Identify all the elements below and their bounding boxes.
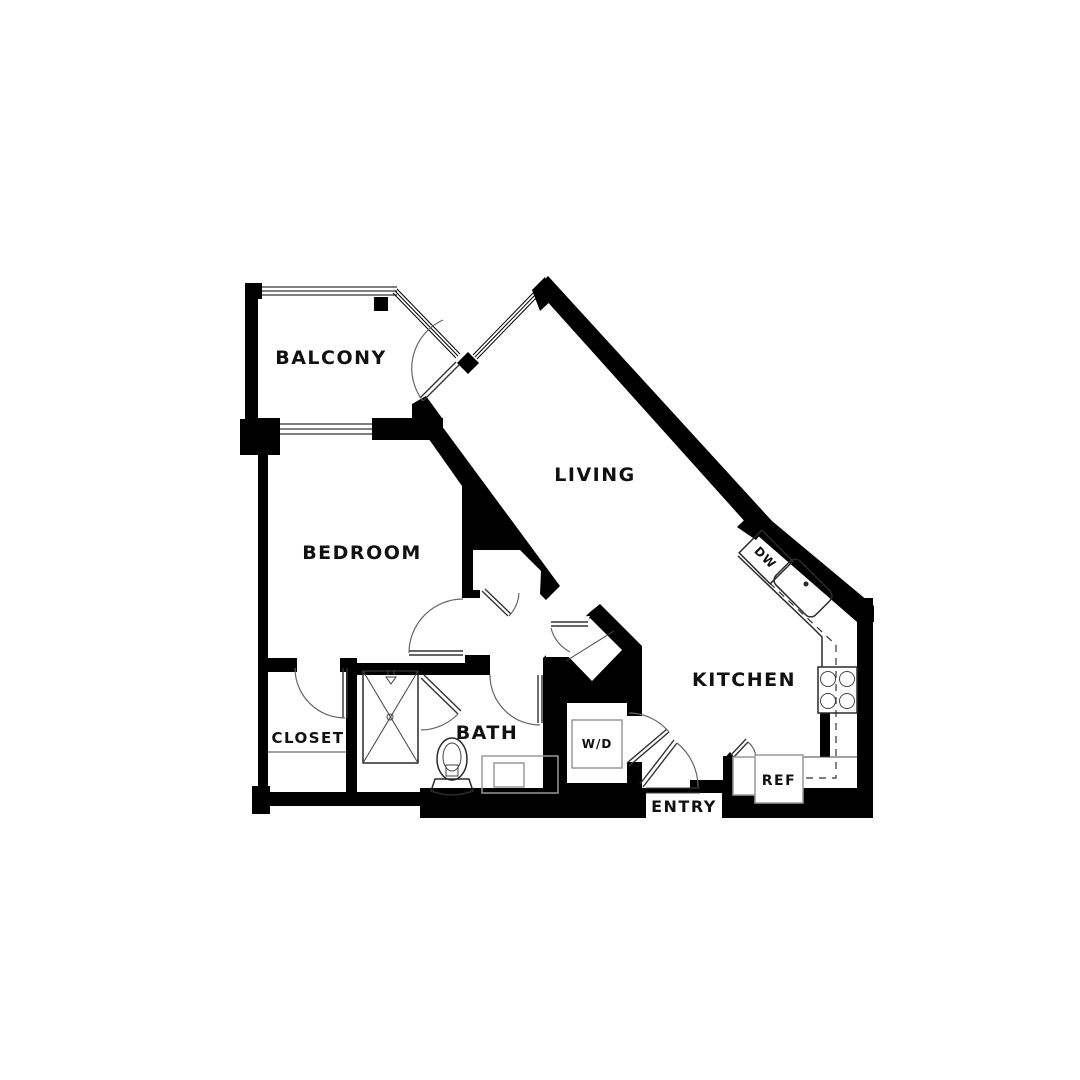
label-balcony: BALCONY bbox=[275, 347, 387, 369]
balcony-corner-post bbox=[457, 352, 479, 374]
niche-door bbox=[482, 589, 519, 616]
label-kitchen: KITCHEN bbox=[692, 669, 796, 691]
balcony-rail-diagonal bbox=[393, 289, 460, 358]
closet-door bbox=[295, 668, 347, 718]
shower bbox=[363, 670, 418, 763]
wall-diagonal-exterior bbox=[536, 276, 874, 622]
floor-plan-canvas: BALCONY LIVING BEDROOM KITCHEN BATH CLOS… bbox=[0, 0, 1080, 1080]
toilet bbox=[431, 738, 473, 795]
label-ref: REF bbox=[762, 773, 796, 789]
wall-closet-top bbox=[258, 658, 297, 672]
wall-bedroom-left bbox=[258, 440, 268, 792]
wall-junction-stub bbox=[412, 396, 442, 418]
wall-bottom-left bbox=[258, 792, 422, 806]
label-bedroom: BEDROOM bbox=[302, 542, 422, 564]
wall-bedroom-door-flare bbox=[462, 590, 480, 598]
wall-bedroom-top-left-stub bbox=[258, 418, 280, 440]
wall-bedroom-living-diagonal bbox=[414, 418, 560, 600]
wall-balcony-topcorner bbox=[245, 283, 262, 299]
label-wd: W/D bbox=[582, 737, 613, 751]
wd-door bbox=[627, 713, 669, 766]
wall-bath-door-flare bbox=[465, 655, 490, 664]
bedroom-door bbox=[409, 599, 463, 655]
bedroom-window bbox=[280, 424, 372, 434]
living-window-diagonal bbox=[473, 292, 538, 359]
floor-plan-drawing: BALCONY LIVING BEDROOM KITCHEN BATH CLOS… bbox=[0, 0, 1080, 1080]
bath-door bbox=[490, 675, 542, 725]
balcony-rail-post bbox=[374, 297, 388, 311]
stove bbox=[818, 667, 857, 713]
balcony-rail-top bbox=[262, 287, 397, 295]
wall-right bbox=[857, 598, 873, 818]
label-entry: ENTRY bbox=[651, 797, 717, 816]
wall-counter-strip bbox=[820, 713, 830, 757]
label-bath: BATH bbox=[456, 722, 519, 744]
label-closet: CLOSET bbox=[271, 729, 344, 747]
label-living: LIVING bbox=[554, 464, 635, 486]
pantry-door bbox=[731, 739, 756, 758]
entry-door bbox=[640, 740, 698, 787]
kitchen-faucet bbox=[804, 582, 809, 587]
